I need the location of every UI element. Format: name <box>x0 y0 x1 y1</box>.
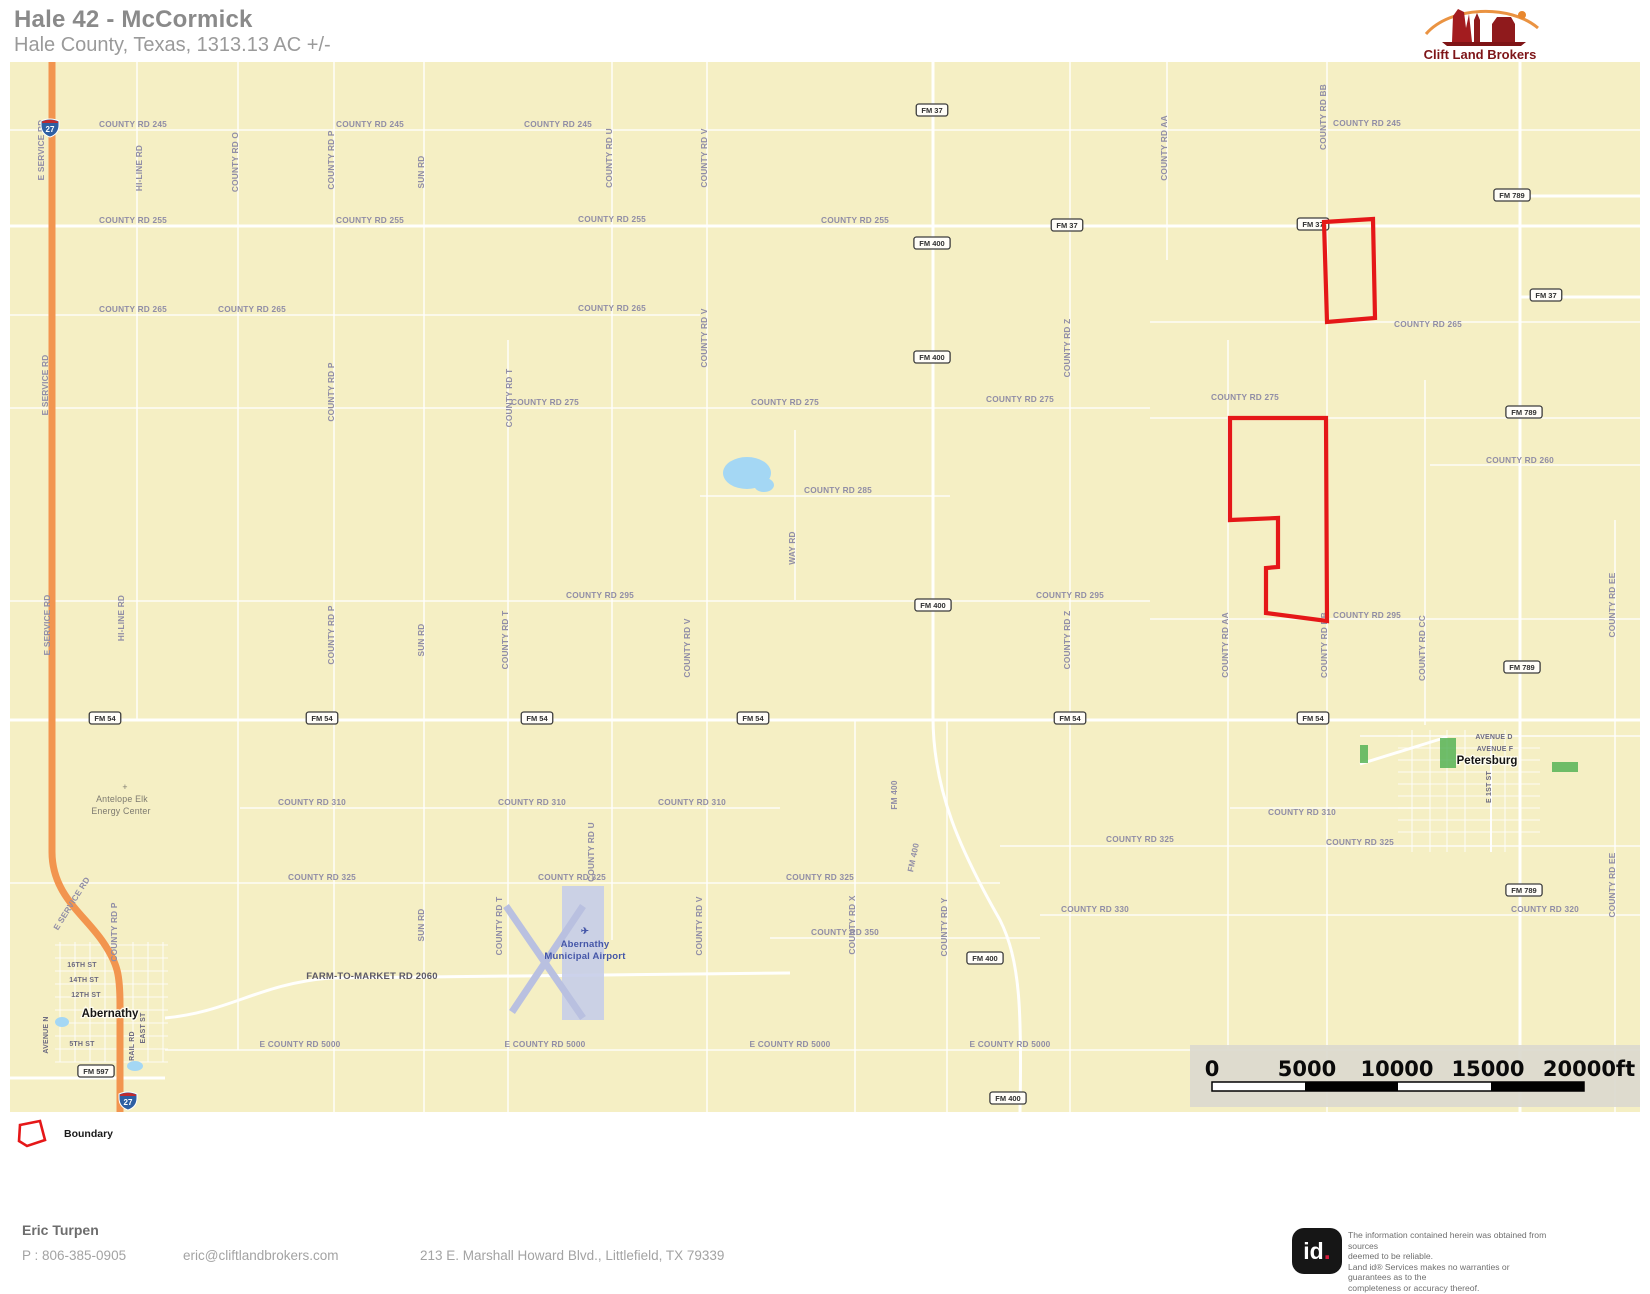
fm-route-shield-label: FM 37 <box>1302 220 1323 229</box>
disclaimer-line: Land id® Services makes no warranties or… <box>1348 1262 1553 1283</box>
road-label: COUNTY RD U <box>586 822 596 882</box>
road-label: Abernathy <box>561 939 610 950</box>
map-brochure-page: Hale 42 - McCormick Hale County, Texas, … <box>0 0 1650 1284</box>
road-label: RAIL RD <box>129 1031 136 1061</box>
road-label: WAY RD <box>787 531 797 564</box>
road-label: COUNTY RD 245 <box>1333 118 1401 128</box>
road-label: COUNTY RD AA <box>1220 612 1230 678</box>
road-label: COUNTY RD X <box>847 895 857 954</box>
road-label: COUNTY RD EE <box>1607 572 1617 637</box>
road-label: COUNTY RD T <box>504 369 514 428</box>
road-label: COUNTY RD P <box>326 362 336 421</box>
road-label: COUNTY RD 255 <box>336 215 404 225</box>
road-label: E SERVICE RD <box>42 595 52 656</box>
road-label: COUNTY RD 295 <box>1036 590 1104 600</box>
road-label: COUNTY RD V <box>682 618 692 677</box>
road-label: E SERVICE RD <box>40 355 50 416</box>
road-label: COUNTY RD 265 <box>99 304 167 314</box>
scale-tick-label: 10000 <box>1360 1057 1433 1081</box>
disclaimer-line: deemed to be reliable. <box>1348 1251 1553 1262</box>
road-label: COUNTY RD 350 <box>811 927 879 937</box>
fm-route-shield-label: FM 400 <box>919 353 944 362</box>
mesa-logo-icon <box>1412 2 1548 48</box>
road-label: COUNTY RD 275 <box>751 397 819 407</box>
road-label: COUNTY RD 265 <box>578 303 646 313</box>
road-label: COUNTY RD 310 <box>278 797 346 807</box>
road-label: COUNTY RD 255 <box>578 214 646 224</box>
road-label: COUNTY RD T <box>500 611 510 670</box>
scale-tick-label: 0 <box>1205 1057 1220 1081</box>
road-label: COUNTY RD 325 <box>786 872 854 882</box>
road-label: EAST ST <box>140 1012 147 1043</box>
road-label: COUNTY RD 310 <box>1268 807 1336 817</box>
road-label: COUNTY RD V <box>694 896 704 955</box>
road-label: 16TH ST <box>67 962 97 969</box>
fm-route-shield-label: FM 400 <box>995 1094 1020 1103</box>
road-label: COUNTY RD T <box>494 897 504 956</box>
fm-route-shield-label: FM 54 <box>1302 714 1324 723</box>
road-label: E 1ST ST <box>1486 771 1493 803</box>
town-label: Petersburg <box>1457 755 1518 767</box>
fm-route-shield-label: FM 400 <box>920 601 945 610</box>
road-label: AVENUE F <box>1477 746 1514 753</box>
land-id-logo-text: id <box>1303 1238 1323 1265</box>
agent-address: 213 E. Marshall Howard Blvd., Littlefiel… <box>420 1248 724 1263</box>
road-label: COUNTY RD 310 <box>498 797 566 807</box>
fm-route-shield-label: FM 54 <box>526 714 548 723</box>
road-label: COUNTY RD V <box>699 308 709 367</box>
road-label: AVENUE D <box>1475 734 1512 741</box>
fm-route-shield-label: FM 789 <box>1511 886 1536 895</box>
road-label: COUNTY RD 275 <box>511 397 579 407</box>
fm-route-shield-label: FM 54 <box>311 714 333 723</box>
road-label: COUNTY RD 325 <box>1326 837 1394 847</box>
road-label: COUNTY RD 325 <box>1106 834 1174 844</box>
road-label: COUNTY RD 330 <box>1061 904 1129 914</box>
scale-tick-label: 20000ft <box>1543 1057 1635 1081</box>
road-label: COUNTY RD Y <box>939 897 949 956</box>
road-label: COUNTY RD 255 <box>821 215 889 225</box>
road-label: COUNTY RD V <box>699 128 709 187</box>
fm-route-shield-label: FM 54 <box>1059 714 1081 723</box>
page-subtitle: Hale County, Texas, 1313.13 AC +/- <box>14 34 331 57</box>
road-label: E COUNTY RD 5000 <box>970 1039 1051 1049</box>
disclaimer-line: The information contained herein was obt… <box>1348 1230 1553 1251</box>
brand-name: Clift Land Brokers <box>1412 47 1548 62</box>
road-label: COUNTY RD 285 <box>804 485 872 495</box>
fm-route-shield-label: FM 54 <box>742 714 764 723</box>
road-label: Antelope Elk <box>96 794 148 804</box>
road-label: HI-LINE RD <box>116 595 126 641</box>
road-label: E COUNTY RD 5000 <box>750 1039 831 1049</box>
fm-route-shield-label: FM 789 <box>1509 663 1534 672</box>
road-label: AVENUE N <box>43 1016 50 1053</box>
road-label: COUNTY RD O <box>230 132 240 192</box>
road-label: COUNTY RD 275 <box>1211 392 1279 402</box>
road-label: FM 400 <box>889 780 899 810</box>
land-id-logo: id. <box>1292 1228 1342 1274</box>
road-label: COUNTY RD P <box>109 902 119 961</box>
road-label: COUNTY RD CC <box>1417 615 1427 681</box>
road-label: E COUNTY RD 5000 <box>505 1039 586 1049</box>
road-label: Energy Center <box>91 806 150 816</box>
road-label: COUNTY RD 260 <box>1486 455 1554 465</box>
scale-tick-label: 15000 <box>1451 1057 1524 1081</box>
road-label: Municipal Airport <box>544 951 626 962</box>
road-label: COUNTY RD BB <box>1318 84 1328 150</box>
scale-tick-label: 5000 <box>1278 1057 1336 1081</box>
road-label: COUNTY RD 255 <box>99 215 167 225</box>
road-label: COUNTY RD 325 <box>288 872 356 882</box>
road-label: COUNTY RD 295 <box>566 590 634 600</box>
map-canvas: COUNTY RD 245COUNTY RD 245COUNTY RD 245C… <box>10 62 1640 1112</box>
fm-route-shield-label: FM 597 <box>83 1067 108 1076</box>
disclaimer-line: completeness or accuracy thereof. <box>1348 1283 1553 1294</box>
fm-route-shield-label: FM 400 <box>919 239 944 248</box>
road-label: + <box>122 782 127 792</box>
road-label: SUN RD <box>416 623 426 656</box>
agent-phone: P : 806-385-0905 <box>22 1248 126 1263</box>
scale-bar: 05000100001500020000ft <box>1190 1045 1640 1107</box>
road-label: E COUNTY RD 5000 <box>260 1039 341 1049</box>
road-label: COUNTY RD 310 <box>658 797 726 807</box>
road-label: COUNTY RD P <box>326 130 336 189</box>
fm-route-shield-label: FM 54 <box>94 714 116 723</box>
fm-route-shield-label: FM 37 <box>921 106 942 115</box>
road-label: 14TH ST <box>69 977 99 984</box>
road-label: COUNTY RD Z <box>1062 319 1072 378</box>
legend-label: Boundary <box>64 1128 113 1140</box>
fm-route-shield-label: FM 37 <box>1535 291 1556 300</box>
road-label: FARM-TO-MARKET RD 2060 <box>306 971 437 982</box>
road-label: SUN RD <box>416 155 426 188</box>
boundary-legend-icon <box>14 1118 50 1150</box>
road-label: COUNTY RD 245 <box>336 119 404 129</box>
agent-name: Eric Turpen <box>22 1222 99 1238</box>
road-label: COUNTY RD 245 <box>524 119 592 129</box>
road-label: COUNTY RD 245 <box>99 119 167 129</box>
road-label: COUNTY RD 320 <box>1511 904 1579 914</box>
agent-email: eric@cliftlandbrokers.com <box>183 1248 339 1263</box>
road-label: COUNTY RD 275 <box>986 394 1054 404</box>
road-label: COUNTY RD 265 <box>218 304 286 314</box>
fm-route-shield-label: FM 789 <box>1499 191 1524 200</box>
road-label: ✈ <box>581 926 590 937</box>
road-label: 5TH ST <box>69 1041 95 1048</box>
brand-logo: Clift Land Brokers <box>1412 2 1548 62</box>
road-label: COUNTY RD EE <box>1607 852 1617 917</box>
fm-route-shield-label: FM 37 <box>1056 221 1077 230</box>
fm-route-shield-label: FM 789 <box>1511 408 1536 417</box>
road-label: COUNTY RD U <box>604 128 614 188</box>
road-label: 12TH ST <box>71 992 101 999</box>
svg-text:27: 27 <box>46 125 55 134</box>
disclaimer-text: The information contained herein was obt… <box>1348 1230 1553 1294</box>
fm-route-shield-label: FM 400 <box>972 954 997 963</box>
road-label: COUNTY RD P <box>326 605 336 664</box>
town-label: Abernathy <box>82 1008 139 1020</box>
road-label: COUNTY RD Z <box>1062 611 1072 670</box>
road-label: HI-LINE RD <box>134 145 144 191</box>
road-label: COUNTY RD 295 <box>1333 610 1401 620</box>
page-title: Hale 42 - McCormick <box>14 6 253 34</box>
svg-text:27: 27 <box>124 1098 133 1107</box>
road-label: COUNTY RD 265 <box>1394 319 1462 329</box>
road-label: SUN RD <box>416 908 426 941</box>
road-label: COUNTY RD AA <box>1159 115 1169 181</box>
